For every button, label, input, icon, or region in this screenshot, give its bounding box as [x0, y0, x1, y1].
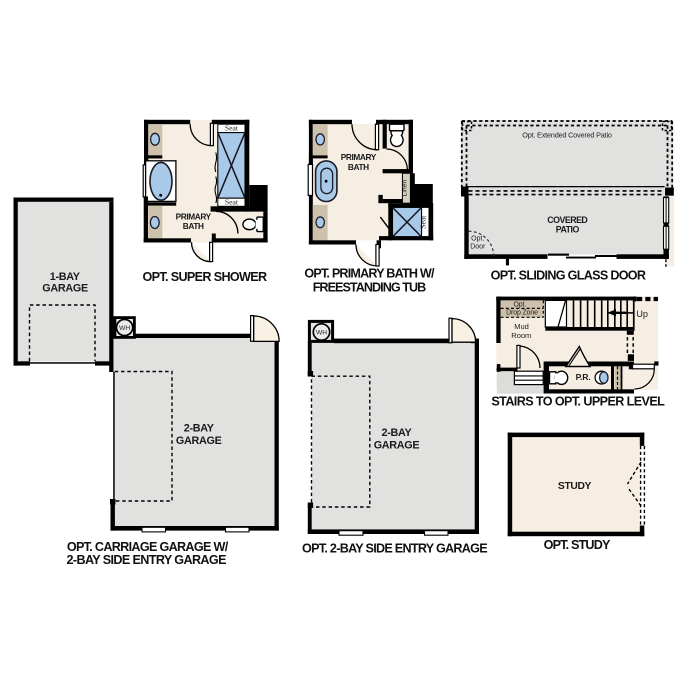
svg-text:Opt.: Opt.: [471, 236, 484, 243]
svg-text:2-BAY: 2-BAY: [382, 427, 413, 439]
svg-text:2-BAY SIDE ENTRY GARAGE: 2-BAY SIDE ENTRY GARAGE: [67, 553, 227, 567]
svg-text:OPT. CARRIAGE GARAGE W/: OPT. CARRIAGE GARAGE W/: [67, 540, 229, 554]
svg-text:Opt. Extended Covered Patio: Opt. Extended Covered Patio: [522, 131, 612, 140]
svg-text:Door: Door: [470, 244, 486, 251]
svg-text:BATH: BATH: [183, 221, 204, 231]
svg-text:OPT. SUPER SHOWER: OPT. SUPER SHOWER: [142, 270, 267, 284]
svg-text:Drop Zone: Drop Zone: [506, 310, 538, 317]
svg-text:Room: Room: [511, 331, 531, 340]
svg-text:2-BAY: 2-BAY: [184, 423, 215, 435]
svg-text:BATH: BATH: [348, 162, 369, 172]
svg-text:GARAGE: GARAGE: [176, 435, 222, 447]
svg-text:OPT. SLIDING GLASS DOOR: OPT. SLIDING GLASS DOOR: [491, 269, 646, 283]
svg-text:P.R.: P.R.: [576, 372, 591, 382]
svg-text:STAIRS TO OPT. UPPER LEVEL: STAIRS TO OPT. UPPER LEVEL: [491, 395, 665, 409]
svg-text:PRIMARY: PRIMARY: [176, 211, 212, 221]
svg-text:Seat: Seat: [419, 215, 428, 229]
svg-text:GARAGE: GARAGE: [42, 283, 88, 295]
svg-text:Seat: Seat: [225, 124, 239, 133]
svg-text:FREESTANDING TUB: FREESTANDING TUB: [313, 281, 426, 295]
svg-text:COVERED: COVERED: [547, 215, 587, 225]
svg-text:PATIO: PATIO: [556, 225, 580, 235]
svg-text:WH: WH: [119, 325, 130, 332]
svg-text:Mud: Mud: [514, 322, 529, 331]
svg-text:OPT. STUDY: OPT. STUDY: [544, 538, 611, 552]
svg-text:WH: WH: [316, 330, 327, 337]
svg-text:PRIMARY: PRIMARY: [341, 152, 377, 162]
svg-text:STUDY: STUDY: [558, 481, 592, 492]
svg-text:Seat: Seat: [225, 198, 239, 207]
svg-text:OPT. 2-BAY SIDE ENTRY GARAGE: OPT. 2-BAY SIDE ENTRY GARAGE: [302, 542, 487, 556]
svg-text:OPT. PRIMARY BATH W/: OPT. PRIMARY BATH W/: [304, 267, 435, 281]
svg-text:GARAGE: GARAGE: [374, 440, 420, 452]
svg-text:Linen: Linen: [402, 180, 409, 197]
svg-text:Opt.: Opt.: [513, 301, 526, 308]
svg-text:Up: Up: [636, 309, 648, 319]
svg-text:1-BAY: 1-BAY: [50, 271, 81, 283]
